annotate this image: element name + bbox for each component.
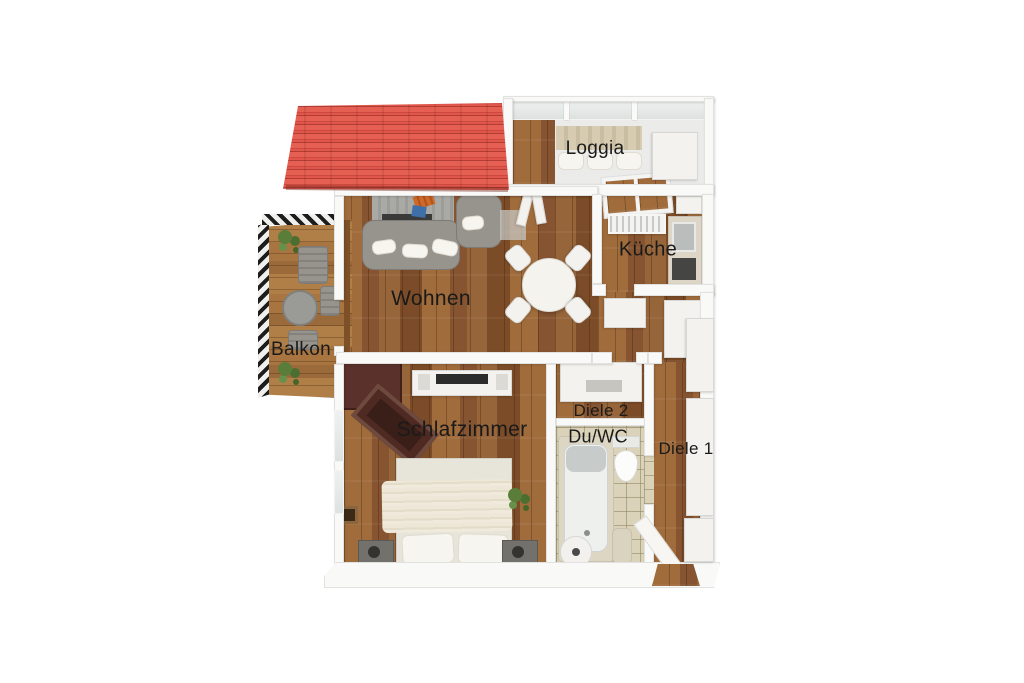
loggia-cabinet	[652, 132, 698, 180]
room-label-loggia: Loggia	[566, 138, 625, 160]
kitchen-left-wall	[592, 194, 602, 284]
radiator	[608, 214, 666, 234]
towel-unit	[612, 528, 632, 564]
speaker-left	[418, 374, 430, 390]
room-label-diele1: Diele 1	[658, 439, 713, 459]
bedroom-bath-wall	[546, 364, 556, 568]
blue-item	[411, 205, 426, 218]
bed-pillow-right	[457, 533, 508, 565]
bed-pillow-left	[401, 533, 454, 566]
washbasin-drain	[572, 548, 580, 556]
kitchen-bottom-wall-stub	[592, 284, 606, 296]
roof-eave-shadow	[286, 185, 508, 192]
living-left-wall	[334, 196, 344, 300]
speaker-right	[496, 374, 508, 390]
room-label-kueche: Küche	[619, 239, 677, 262]
entrance-threshold	[652, 564, 700, 586]
bathroom-door-floor	[644, 456, 654, 504]
bathtub-head	[566, 446, 606, 472]
bathtub-drain	[584, 530, 590, 536]
armchair-pillow	[461, 215, 484, 231]
loggia-wood-strip	[513, 118, 555, 184]
loggia-right-wall	[704, 98, 714, 194]
room-label-diele2: Diele 2	[573, 401, 628, 421]
bedroom-plant	[508, 488, 522, 502]
bedroom-left-wall	[334, 364, 344, 568]
room-label-schlafzimmer: Schlafzimmer	[397, 418, 528, 442]
room-label-wohnen: Wohnen	[391, 287, 471, 311]
roof	[278, 98, 512, 192]
bedroom-window-1	[334, 410, 344, 462]
diele2-top-wall-stub-left	[592, 352, 612, 364]
bath-diele1-wall-upper	[644, 364, 654, 456]
room-label-balkon: Balkon	[271, 339, 331, 361]
room-label-duwc: Du/WC	[568, 427, 628, 448]
kitchen-cabinet	[676, 196, 702, 214]
balcony-post	[344, 220, 350, 356]
living-bedroom-wall	[336, 352, 592, 364]
diele1-bench	[684, 518, 714, 562]
balcony-table	[282, 290, 318, 326]
balcony-railing-left	[258, 222, 269, 398]
loggia-top-wall	[503, 96, 714, 102]
floor-plan-image: Loggia Küche Wohnen Balkon Schlafzimmer …	[0, 0, 1024, 683]
sofa-pillow-2	[402, 243, 429, 258]
bed-duvet	[382, 479, 513, 533]
diele1-top-wall-stub	[648, 352, 662, 364]
balcony-plant-bottom	[278, 362, 292, 376]
sideboard-tv	[436, 374, 488, 384]
bedroom-window-2	[334, 470, 344, 514]
balcony-lounger	[298, 246, 328, 284]
nightstand-left-lamp	[368, 546, 380, 558]
loggia-glazing	[505, 100, 712, 120]
hall-cabinet-upper-a	[604, 298, 646, 328]
loggia-mullion-1	[564, 100, 569, 120]
diele2-top-wall-stub-right	[636, 352, 648, 364]
kitchen-right-wall	[702, 194, 714, 294]
nightstand-right-lamp	[512, 546, 524, 558]
diele2-drawer	[586, 380, 622, 392]
loggia-mullion-2	[632, 100, 637, 120]
balcony-plant-top	[278, 230, 292, 244]
balcony-railing-top	[262, 214, 344, 225]
diele1-cabinet-1	[686, 318, 714, 392]
